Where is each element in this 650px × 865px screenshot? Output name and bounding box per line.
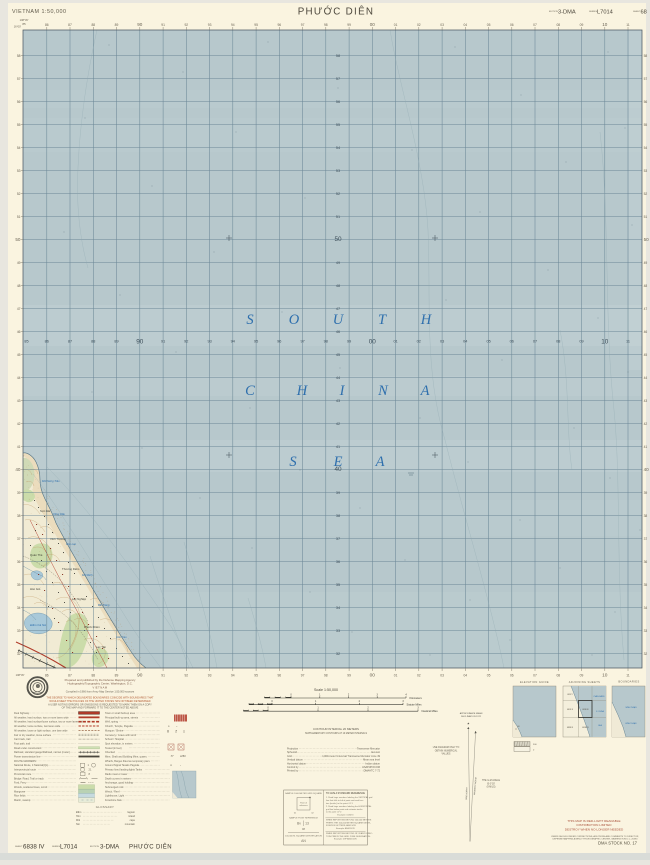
- svg-text:100,000 M. SQUARE IDENTIFICATI: 100,000 M. SQUARE IDENTIFICATION: [285, 835, 322, 838]
- svg-text:51: 51: [336, 215, 340, 219]
- svg-text:90: 90: [137, 22, 143, 27]
- svg-text:53: 53: [17, 169, 21, 173]
- svg-text:lagoon: lagoon: [127, 811, 135, 814]
- svg-text:tion (tenths) to the point: 0: tion (tenths) to the point: 01 3: [326, 802, 353, 805]
- svg-text:43: 43: [17, 399, 21, 403]
- svg-text:mountain: mountain: [125, 823, 136, 826]
- svg-text:36: 36: [336, 560, 340, 564]
- svg-text:6838 III: 6838 III: [582, 709, 589, 711]
- svg-text:DMA STOCK NO. 17: DMA STOCK NO. 17: [598, 841, 638, 846]
- svg-text:87: 87: [68, 340, 72, 344]
- svg-text:34: 34: [336, 606, 340, 610]
- svg-text:6838 III: 6838 III: [567, 727, 574, 729]
- svg-text:11: 11: [626, 340, 630, 344]
- svg-text:53: 53: [336, 169, 340, 173]
- svg-text:46: 46: [336, 330, 340, 334]
- svg-text:T: T: [378, 312, 387, 328]
- svg-text:87: 87: [68, 23, 72, 27]
- svg-text:94: 94: [231, 340, 235, 344]
- svg-text:L7014: L7014: [597, 10, 613, 16]
- svg-text:49: 49: [336, 261, 340, 265]
- svg-text:13: 13: [305, 822, 309, 826]
- svg-text:Church, Temple, Pagoda: Church, Temple, Pagoda: [105, 725, 133, 728]
- svg-text:Provincial route: Provincial route: [14, 773, 32, 776]
- svg-text:00: 00: [370, 22, 376, 27]
- svg-text:46: 46: [644, 330, 648, 334]
- svg-text:ELEVATION GUIDE: ELEVATION GUIDE: [520, 680, 549, 684]
- svg-text:WOULD MEET THE POLICIES OF THE: WOULD MEET THE POLICIES OF THE UNITED ST…: [49, 700, 150, 703]
- svg-text:3-DMA: 3-DMA: [558, 10, 576, 16]
- svg-text:85: 85: [22, 22, 26, 26]
- svg-text:68: 68: [641, 10, 647, 16]
- svg-text:45: 45: [336, 353, 340, 357]
- svg-text:56: 56: [336, 100, 340, 104]
- svg-text:Lighthouse, Light: Lighthouse, Light: [105, 795, 124, 798]
- svg-text:52: 52: [17, 192, 21, 196]
- svg-text:98: 98: [324, 674, 328, 678]
- svg-text:97: 97: [301, 23, 305, 27]
- svg-text:TION PREFIX THE GRID ZONE DESI: TION PREFIX THE GRID ZONE DESIGNATION:: [326, 835, 371, 838]
- svg-text:39: 39: [336, 491, 340, 495]
- svg-text:ROUTE MARKERS:: ROUTE MARKERS:: [14, 760, 37, 763]
- svg-text:54: 54: [17, 146, 21, 150]
- svg-text:VIETNAM 1:50,000: VIETNAM 1:50,000: [12, 9, 66, 15]
- svg-text:ADJOINING SHEETS: ADJOINING SHEETS: [569, 680, 601, 684]
- svg-text:Quán Thẻ: Quán Thẻ: [30, 553, 43, 557]
- svg-text:Kilometers: Kilometers: [410, 696, 423, 700]
- svg-text:99: 99: [347, 23, 351, 27]
- svg-text:50: 50: [334, 236, 342, 243]
- svg-text:44: 44: [336, 376, 340, 380]
- svg-text:03: 03: [440, 340, 444, 344]
- svg-text:45: 45: [17, 353, 21, 357]
- svg-text:TO GIVE A STANDARD REFERENCE: TO GIVE A STANDARD REFERENCE: [326, 792, 366, 795]
- svg-text:Foot path, trail: Foot path, trail: [14, 743, 30, 746]
- svg-text:96: 96: [277, 340, 281, 344]
- svg-text:USERS SHOULD REFER CORRECTIONS: USERS SHOULD REFER CORRECTIONS, ADDITION…: [551, 835, 639, 838]
- svg-text:Mean sea level: Mean sea level: [363, 759, 380, 762]
- svg-text:32: 32: [17, 652, 21, 656]
- svg-text:88: 88: [91, 340, 95, 344]
- svg-text:88: 88: [91, 674, 95, 678]
- svg-text:55: 55: [644, 123, 648, 127]
- svg-text:Principal built-up area, stree: Principal built-up area, streets: [105, 716, 139, 719]
- svg-text:USE DIAGRAM ONLY TO: USE DIAGRAM ONLY TO: [433, 746, 460, 749]
- svg-text:CONTOUR INTERVAL 20 METERS: CONTOUR INTERVAL 20 METERS: [313, 727, 359, 731]
- svg-text:47: 47: [336, 307, 340, 311]
- svg-text:H: H: [296, 383, 309, 399]
- svg-text:57: 57: [17, 77, 21, 81]
- svg-text:55: 55: [17, 123, 21, 127]
- svg-text:88: 88: [91, 23, 95, 27]
- svg-text:57: 57: [336, 77, 340, 81]
- svg-text:BÌNH THUẬN: BÌNH THUẬN: [626, 722, 638, 725]
- svg-text:(9 MILS): (9 MILS): [487, 787, 496, 789]
- svg-text:35: 35: [17, 583, 21, 587]
- svg-text:06: 06: [510, 23, 514, 27]
- svg-text:10: 10: [602, 673, 608, 679]
- svg-text:06: 06: [510, 340, 514, 344]
- svg-text:03: 03: [440, 23, 444, 27]
- svg-text:00: 00: [370, 673, 376, 679]
- svg-text:05: 05: [487, 674, 491, 678]
- svg-text:51: 51: [17, 215, 21, 219]
- svg-text:45: 45: [644, 353, 648, 357]
- svg-text:PREFIX THE 100,000 METER SQUAR: PREFIX THE 100,000 METER SQUARE IDENTI-: [326, 821, 371, 824]
- svg-text:to the point: 47 0: to the point: 47 0: [326, 811, 342, 814]
- svg-text:01: 01: [394, 674, 398, 678]
- svg-text:Wreck / Reef: Wreck / Reef: [105, 790, 120, 793]
- svg-text:09: 09: [579, 340, 583, 344]
- svg-text:04: 04: [463, 674, 467, 678]
- svg-text:06: 06: [510, 674, 514, 678]
- svg-text:04: 04: [463, 23, 467, 27]
- svg-text:97: 97: [300, 340, 304, 344]
- svg-text:42: 42: [17, 422, 21, 426]
- svg-text:GLOSSARY: GLOSSARY: [96, 805, 115, 809]
- svg-text:53: 53: [644, 169, 648, 173]
- svg-text:10: 10: [601, 339, 609, 346]
- svg-text:38: 38: [644, 514, 648, 518]
- svg-text:44: 44: [17, 376, 21, 380]
- svg-text:Tested (in feet): Tested (in feet): [105, 747, 122, 750]
- svg-text:Phước Diêm: Phước Diêm: [84, 625, 100, 629]
- svg-text:All weather, loose surface, tw: All weather, loose surface, two lanes wi…: [14, 725, 61, 728]
- svg-text:32: 32: [336, 652, 340, 656]
- svg-text:cape: cape: [130, 819, 136, 822]
- svg-text:Lạc Tân: Lạc Tân: [96, 645, 106, 649]
- svg-text:PHƯỚC DIÊN: PHƯỚC DIÊN: [129, 843, 172, 851]
- svg-text:93: 93: [207, 340, 211, 344]
- svg-text:08: 08: [556, 23, 560, 27]
- svg-text:OBTAIN NUMERICAL: OBTAIN NUMERICAL: [435, 749, 458, 752]
- svg-text:N: N: [377, 383, 389, 399]
- svg-text:Vĩnh Trường: Vĩnh Trường: [50, 537, 66, 541]
- svg-text:All weather, hard surface/loos: All weather, hard surface/loose surface,…: [14, 721, 85, 724]
- svg-text:86: 86: [45, 23, 49, 27]
- svg-text:Mangrove: Mangrove: [14, 790, 26, 793]
- svg-text:EDITION: EDITION: [90, 846, 99, 848]
- svg-text:07: 07: [533, 340, 537, 344]
- svg-text:Đầm: Đầm: [76, 811, 81, 814]
- svg-text:National Route, 1:National(QL): National Route, 1:National(QL): [14, 764, 48, 767]
- svg-text:94: 94: [231, 674, 235, 678]
- svg-text:Transverse Mercator: Transverse Mercator: [357, 748, 380, 751]
- svg-text:Depth curves in meters: Depth curves in meters: [105, 777, 131, 780]
- svg-text:95: 95: [254, 340, 258, 344]
- svg-text:40: 40: [334, 466, 342, 473]
- svg-text:x253: x253: [180, 754, 186, 758]
- svg-text:All weather, hard surface, two: All weather, hard surface, two or more l…: [14, 716, 69, 719]
- svg-text:38: 38: [17, 514, 21, 518]
- svg-text:87: 87: [68, 674, 72, 678]
- svg-text:WHEN REPORTING BEYOND 100,000: WHEN REPORTING BEYOND 100,000 METERS: [326, 819, 372, 821]
- svg-text:46: 46: [17, 330, 21, 334]
- svg-text:Grid: Grid: [287, 755, 292, 758]
- svg-text:99: 99: [347, 674, 351, 678]
- svg-text:6838 II: 6838 II: [567, 709, 573, 711]
- svg-text:07: 07: [533, 23, 537, 27]
- svg-text:Dual highway: Dual highway: [14, 712, 30, 715]
- svg-text:Nautical Miles: Nautical Miles: [422, 709, 439, 713]
- svg-text:Compiled in 1966 from Army Map: Compiled in 1966 from Army Map Service 1…: [66, 690, 135, 694]
- svg-text:92: 92: [184, 340, 188, 344]
- svg-text:Mine, Shaft and Building Mine,: Mine, Shaft and Building Mine, quarry: [105, 756, 147, 759]
- svg-text:47: 47: [644, 307, 648, 311]
- svg-text:10: 10: [602, 22, 608, 27]
- svg-text:Example: 49P AN013470: Example: 49P AN013470: [334, 838, 358, 841]
- svg-text:108°45′: 108°45′: [16, 673, 25, 677]
- svg-text:Hòn Gió: Hòn Gió: [30, 587, 41, 591]
- svg-text:58: 58: [336, 54, 340, 58]
- svg-text:Spot elevation, in meters: Spot elevation, in meters: [105, 743, 133, 746]
- svg-text:Submerged rock: Submerged rock: [105, 786, 124, 789]
- svg-text:Woods, scattered trees, scrub: Woods, scattered trees, scrub: [14, 786, 48, 789]
- svg-text:58: 58: [17, 54, 21, 58]
- svg-text:2. Read large numbers labeling: 2. Read large numbers labeling the HORIZ…: [326, 805, 372, 808]
- svg-text:55: 55: [336, 123, 340, 127]
- svg-text:05: 05: [486, 340, 490, 344]
- svg-text:grid line below point and esti: grid line below point and estimate tenth…: [326, 808, 363, 811]
- svg-text:.77: .77: [170, 754, 174, 758]
- svg-text:90: 90: [136, 339, 144, 346]
- svg-text:6837 I: 6837 I: [567, 694, 573, 696]
- svg-text:11: 11: [626, 23, 630, 27]
- svg-text:38: 38: [336, 514, 340, 518]
- svg-text:43: 43: [336, 399, 340, 403]
- svg-text:Example: 013470: Example: 013470: [337, 815, 354, 817]
- svg-text:OF THE MAP AND FORWARD IT TO T: OF THE MAP AND FORWARD IT TO THE CENTER …: [62, 707, 139, 710]
- svg-text:Mosque / Shrine: Mosque / Shrine: [105, 729, 124, 732]
- svg-text:04: 04: [463, 340, 467, 344]
- svg-text:Power transmission line: Power transmission line: [14, 756, 41, 759]
- svg-text:37: 37: [644, 537, 648, 541]
- svg-text:Horizontal datum: Horizontal datum: [287, 762, 306, 765]
- svg-text:51: 51: [644, 215, 648, 219]
- svg-text:THE G-M ANGLE: THE G-M ANGLE: [482, 779, 500, 782]
- svg-text:Rice fields: Rice fields: [14, 795, 26, 798]
- svg-text:Radio mast or tower: Radio mast or tower: [105, 773, 128, 776]
- svg-text:Example: AN013470: Example: AN013470: [336, 827, 356, 830]
- svg-text:PHAN RANG: PHAN RANG: [594, 695, 605, 698]
- svg-text:33: 33: [336, 629, 340, 633]
- svg-text:07: 07: [533, 674, 537, 678]
- svg-text:AN: AN: [301, 839, 306, 843]
- svg-text:36: 36: [17, 560, 21, 564]
- svg-text:Wharfs, Barges fitted as tempo: Wharfs, Barges fitted as temporary piers: [105, 760, 150, 763]
- svg-text:island: island: [128, 815, 135, 818]
- svg-text:School / Hospital: School / Hospital: [105, 738, 124, 741]
- svg-text:reference: reference: [299, 805, 308, 807]
- svg-text:33: 33: [17, 629, 21, 633]
- svg-text:Railroad, standard gauge/Railr: Railroad, standard gauge/Railroad, narro…: [14, 751, 70, 754]
- svg-text:41: 41: [644, 445, 648, 449]
- svg-text:16°00′: 16°00′: [14, 25, 22, 29]
- svg-text:1. Read large numbers labeling: 1. Read large numbers labeling the VERTI…: [326, 796, 372, 799]
- svg-text:37: 37: [336, 537, 340, 541]
- svg-text:S: S: [246, 312, 254, 328]
- svg-text:91: 91: [161, 674, 165, 678]
- svg-text:48: 48: [17, 284, 21, 288]
- svg-text:Statute Miles: Statute Miles: [407, 703, 423, 707]
- svg-text:S. CHINA: S. CHINA: [596, 710, 605, 713]
- svg-text:Printed by: Printed by: [287, 770, 299, 773]
- svg-text:98: 98: [518, 726, 520, 728]
- svg-text:42: 42: [644, 422, 648, 426]
- svg-text:57: 57: [644, 77, 648, 81]
- svg-text:Primary fixed landing lights: Primary fixed landing lights Tanks: [105, 769, 143, 772]
- svg-text:S: S: [289, 454, 297, 470]
- svg-text:Hòn: Hòn: [76, 815, 81, 818]
- svg-text:36: 36: [644, 560, 648, 564]
- svg-text:97: 97: [301, 674, 305, 678]
- svg-text:VALUES: VALUES: [442, 753, 451, 756]
- svg-text:Indian datum: Indian datum: [366, 762, 380, 765]
- svg-text:39: 39: [644, 491, 648, 495]
- svg-text:USATOPOCOM: USATOPOCOM: [362, 766, 380, 769]
- svg-text:Town or small built-up area: Town or small built-up area: [105, 712, 135, 715]
- svg-text:Đầm Cà Ná: Đầm Cà Ná: [30, 623, 46, 627]
- svg-text:58: 58: [644, 54, 648, 58]
- svg-text:PHƯỚC DIÊN: PHƯỚC DIÊN: [298, 7, 375, 18]
- svg-text:34: 34: [17, 606, 21, 610]
- svg-text:3-DMA: 3-DMA: [100, 844, 120, 851]
- svg-text:Interprovincial route: Interprovincial route: [14, 769, 37, 772]
- svg-text:03: 03: [440, 674, 444, 678]
- svg-text:01: 01: [393, 340, 397, 344]
- svg-text:93: 93: [208, 23, 212, 27]
- svg-text:DECLINATION 1972: DECLINATION 1972: [461, 715, 482, 718]
- svg-text:42: 42: [336, 422, 340, 426]
- svg-text:Mũi: Mũi: [76, 819, 80, 822]
- svg-text:54: 54: [644, 146, 648, 150]
- svg-text:⊙: ⊙: [170, 764, 172, 767]
- svg-text:NINH THUẬN: NINH THUẬN: [625, 706, 637, 709]
- svg-text:line that falls to left of poi: line that falls to left of point and rea…: [326, 799, 364, 802]
- svg-text:96: 96: [277, 23, 281, 27]
- svg-text:Thương Diêm: Thương Diêm: [62, 567, 80, 571]
- svg-text:94: 94: [231, 23, 235, 27]
- svg-text:O: O: [289, 312, 300, 328]
- svg-text:09: 09: [580, 23, 584, 27]
- svg-text:Fair or dry weather, loose sur: Fair or dry weather, loose surface: [14, 734, 52, 737]
- svg-text:Mũi Sừng Trâu: Mũi Sừng Trâu: [42, 479, 60, 483]
- svg-text:33: 33: [644, 629, 648, 633]
- svg-text:▫: ▫: [180, 764, 181, 767]
- svg-text:EDITION: EDITION: [549, 11, 558, 13]
- svg-text:Spheroid: Spheroid: [287, 751, 298, 754]
- svg-text:All weather, loose or light su: All weather, loose or light surface, one…: [14, 729, 68, 732]
- svg-text:40: 40: [644, 467, 650, 472]
- svg-text:85: 85: [24, 340, 28, 344]
- svg-text:02: 02: [417, 674, 421, 678]
- svg-text:86: 86: [45, 340, 49, 344]
- svg-text:Cemetery / Grave with tomb: Cemetery / Grave with tomb: [105, 734, 137, 737]
- svg-text:6838 IV: 6838 IV: [23, 844, 45, 851]
- svg-text:89: 89: [114, 340, 118, 344]
- svg-text:WHEN REPORTING BEYOND 18° IN A: WHEN REPORTING BEYOND 18° IN ANY DIREC-: [326, 832, 373, 835]
- svg-text:49: 49: [644, 261, 648, 265]
- svg-text:48: 48: [336, 284, 340, 288]
- svg-text:56: 56: [17, 100, 21, 104]
- svg-text:40: 40: [15, 467, 21, 472]
- svg-text:Bv: Bv: [297, 822, 301, 826]
- svg-text:Foreshore flats: Foreshore flats: [105, 799, 122, 802]
- svg-text:Hòn Lao: Hòn Lao: [66, 542, 77, 546]
- svg-text:Road under construction: Road under construction: [14, 747, 42, 750]
- svg-text:39: 39: [17, 491, 21, 495]
- svg-text:41: 41: [336, 445, 340, 449]
- svg-text:Everest: Everest: [372, 751, 381, 754]
- svg-text:Ford, Ferry: Ford, Ferry: [14, 782, 27, 785]
- svg-text:41: 41: [17, 445, 21, 449]
- svg-text:96: 96: [277, 674, 281, 678]
- svg-text:32: 32: [644, 652, 648, 656]
- svg-text:Marsh, swamp: Marsh, swamp: [14, 799, 31, 802]
- svg-text:SHEET: SHEET: [15, 846, 23, 848]
- svg-text:44: 44: [644, 376, 648, 380]
- svg-text:IS 0°30′: IS 0°30′: [487, 783, 496, 785]
- svg-text:6838 IV: 6838 IV: [582, 727, 589, 729]
- svg-text:52: 52: [644, 192, 648, 196]
- svg-text:47: 47: [17, 307, 21, 311]
- svg-text:Mũi Dinh: Mũi Dinh: [82, 573, 93, 577]
- svg-text:99: 99: [347, 340, 351, 344]
- svg-text:Sơn Hải: Sơn Hải: [40, 509, 51, 513]
- svg-text:H: H: [420, 312, 433, 328]
- svg-text:Checked: Checked: [105, 751, 115, 754]
- svg-text:Núi: Núi: [76, 823, 80, 826]
- svg-text:Ground Signal Tanaks Pagoda: Ground Signal Tanaks Pagoda: [105, 764, 139, 767]
- svg-text:11: 11: [626, 674, 630, 678]
- svg-text:89: 89: [115, 23, 119, 27]
- svg-text:95: 95: [254, 674, 258, 678]
- svg-text:09: 09: [580, 674, 584, 678]
- svg-text:A: A: [420, 383, 430, 399]
- svg-text:91: 91: [161, 23, 165, 27]
- svg-text:Vertical datum: Vertical datum: [287, 759, 303, 762]
- svg-text:56: 56: [644, 100, 648, 104]
- svg-text:Control by: Control by: [287, 766, 299, 769]
- svg-text:95: 95: [254, 23, 258, 27]
- svg-text:86: 86: [45, 674, 49, 678]
- svg-text:92: 92: [184, 674, 188, 678]
- svg-text:BOUNDARIES: BOUNDARIES: [618, 680, 639, 684]
- svg-text:1,000-meter Universal Transver: 1,000-meter Universal Transverse Mercato…: [322, 755, 380, 758]
- svg-text:Projection: Projection: [287, 748, 299, 751]
- svg-text:02: 02: [417, 23, 421, 27]
- svg-text:VIETNAM: VIETNAM: [92, 685, 107, 689]
- svg-text:SAMPLE 1000-METER GRID SQUARE: SAMPLE 1000-METER GRID SQUARE: [285, 792, 322, 795]
- svg-text:08: 08: [556, 674, 560, 678]
- svg-text:DMAHTC 7-72: DMAHTC 7-72: [364, 770, 381, 773]
- svg-text:02: 02: [417, 340, 421, 344]
- svg-text:93: 93: [208, 674, 212, 678]
- svg-text:U: U: [333, 312, 345, 328]
- svg-text:Anchorage, good holding: Anchorage, good holding: [105, 782, 133, 785]
- svg-text:00: 00: [369, 339, 377, 346]
- svg-text:SAMPLE POINT REFERENCE: SAMPLE POINT REFERENCE: [289, 817, 318, 820]
- svg-text:98: 98: [324, 23, 328, 27]
- svg-text:08: 08: [556, 340, 560, 344]
- svg-text:L7014: L7014: [60, 844, 78, 851]
- svg-text:A: A: [375, 454, 385, 470]
- svg-text:APPROXIMATE MEAN: APPROXIMATE MEAN: [460, 712, 483, 715]
- svg-text:43: 43: [644, 399, 648, 403]
- svg-text:90: 90: [137, 673, 143, 679]
- svg-text:Hòn Cau: Hòn Cau: [116, 635, 127, 639]
- svg-text:54: 54: [336, 146, 340, 150]
